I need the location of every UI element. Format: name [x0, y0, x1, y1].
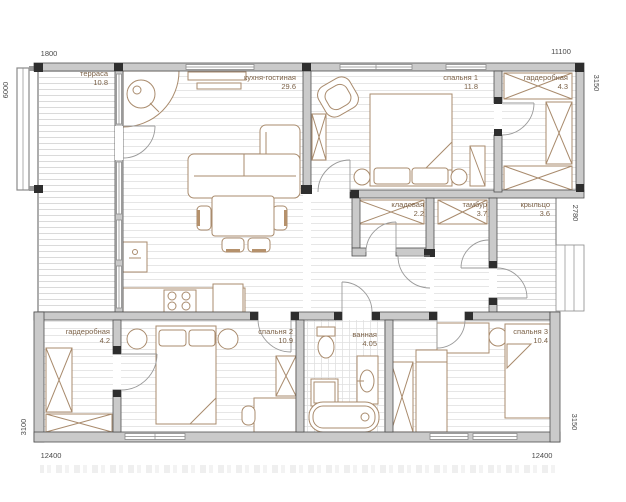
window-living-top — [186, 65, 254, 70]
label-wardrobe-top-area: 4.3 — [558, 82, 568, 91]
label-terrace: терраса — [80, 69, 109, 78]
label-terrace-area: 10.8 — [93, 78, 108, 87]
label-porch-area: 3.6 — [540, 209, 550, 218]
label-bedroom2-area: 10.9 — [278, 336, 293, 345]
dim-right-bottom-height: 3150 — [570, 414, 579, 431]
sink-icon — [357, 356, 378, 404]
label-kitchen-living-area: 29.6 — [281, 82, 296, 91]
dim-porch-height: 2780 — [571, 205, 580, 222]
label-bedroom2: спальня 2 — [258, 327, 293, 336]
dim-bottom-width-left: 12400 — [41, 451, 62, 460]
window-bedroom1-top-2 — [446, 65, 486, 70]
label-vestibule-area: 3.7 — [477, 209, 487, 218]
dim-right-top-height: 3150 — [592, 75, 601, 92]
window-bedroom3-bottom-1 — [430, 434, 468, 440]
toilet-icon — [317, 327, 335, 358]
dim-terrace-width: 1800 — [41, 49, 58, 58]
dim-left-height: 6000 — [1, 82, 10, 99]
label-vestibule: тамбур — [462, 200, 487, 209]
floor-plan-drawing: терраса 10.8 кухня-гостиная 29.6 спальня… — [0, 0, 626, 502]
floor-plan-page: терраса 10.8 кухня-гостиная 29.6 спальня… — [0, 0, 626, 502]
label-bedroom1-area: 11.8 — [464, 82, 478, 91]
label-bathroom: ванная — [352, 330, 377, 339]
bathtub-icon — [309, 402, 379, 432]
label-bedroom3-area: 10.4 — [533, 336, 548, 345]
dim-left-bottom-height: 3100 — [19, 419, 28, 436]
window-bedroom3-bottom-2 — [473, 434, 517, 440]
label-bedroom1: спальня 1 — [443, 73, 478, 82]
label-wardrobe-bottom: гардеробная — [66, 327, 110, 336]
label-storage-area: 2.2 — [414, 209, 424, 218]
label-wardrobe-top: гардеробная — [524, 73, 568, 82]
window-bedroom1-top-1 — [340, 65, 412, 70]
dim-bottom-width-right: 12400 — [532, 451, 553, 460]
label-kitchen-living: кухня-гостиная — [244, 73, 296, 82]
label-porch: крыльцо — [520, 200, 550, 209]
tv-console — [188, 72, 246, 89]
label-wardrobe-bottom-area: 4.2 — [100, 336, 110, 345]
window-wall-terrace — [117, 74, 122, 308]
label-bedroom3: спальня 3 — [513, 327, 548, 336]
stove-icon — [164, 290, 196, 312]
window-bedroom2-bottom — [125, 434, 185, 440]
watermark-strip — [40, 463, 560, 476]
label-bathroom-area: 4.05 — [362, 339, 377, 348]
label-storage: кладовая — [391, 200, 424, 209]
dim-house-width: 11100 — [551, 47, 571, 56]
